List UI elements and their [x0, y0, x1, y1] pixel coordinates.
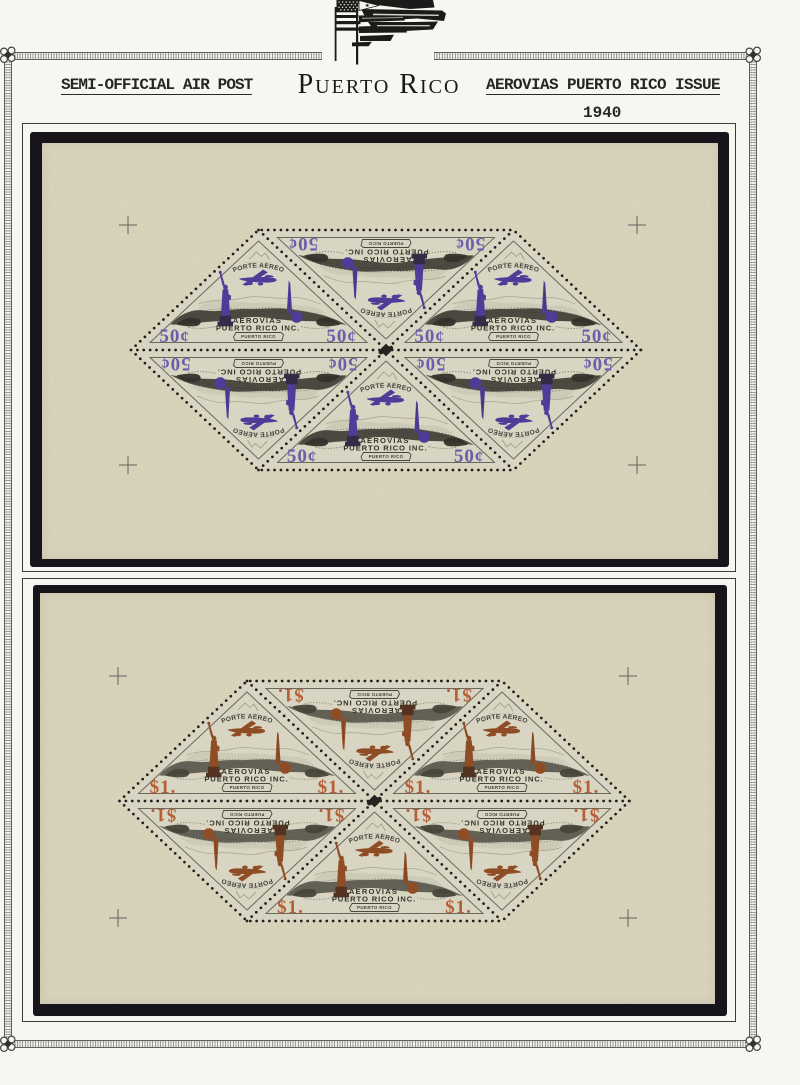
svg-text:50¢: 50¢: [455, 233, 485, 254]
svg-text:$1.: $1.: [573, 804, 600, 825]
svg-text:$1.: $1.: [318, 777, 345, 798]
svg-text:50¢: 50¢: [581, 326, 611, 347]
svg-text:50¢: 50¢: [414, 326, 444, 347]
svg-text:$1.: $1.: [318, 804, 345, 825]
svg-text:$1.: $1.: [405, 804, 432, 825]
svg-text:50¢: 50¢: [327, 353, 357, 374]
svg-text:50¢: 50¢: [454, 446, 484, 467]
svg-text:50¢: 50¢: [288, 233, 318, 254]
svg-text:$1.: $1.: [150, 777, 177, 798]
svg-text:$1.: $1.: [277, 897, 304, 918]
svg-text:$1.: $1.: [445, 897, 472, 918]
svg-text:50¢: 50¢: [415, 353, 445, 374]
svg-text:50¢: 50¢: [287, 446, 317, 467]
svg-text:$1.: $1.: [150, 804, 177, 825]
svg-text:50¢: 50¢: [159, 326, 189, 347]
svg-text:50¢: 50¢: [160, 353, 190, 374]
svg-text:50¢: 50¢: [326, 326, 356, 347]
svg-text:$1.: $1.: [573, 777, 600, 798]
svg-text:$1.: $1.: [445, 684, 472, 705]
svg-text:50¢: 50¢: [582, 353, 612, 374]
svg-text:$1.: $1.: [405, 777, 432, 798]
svg-text:$1.: $1.: [277, 684, 304, 705]
